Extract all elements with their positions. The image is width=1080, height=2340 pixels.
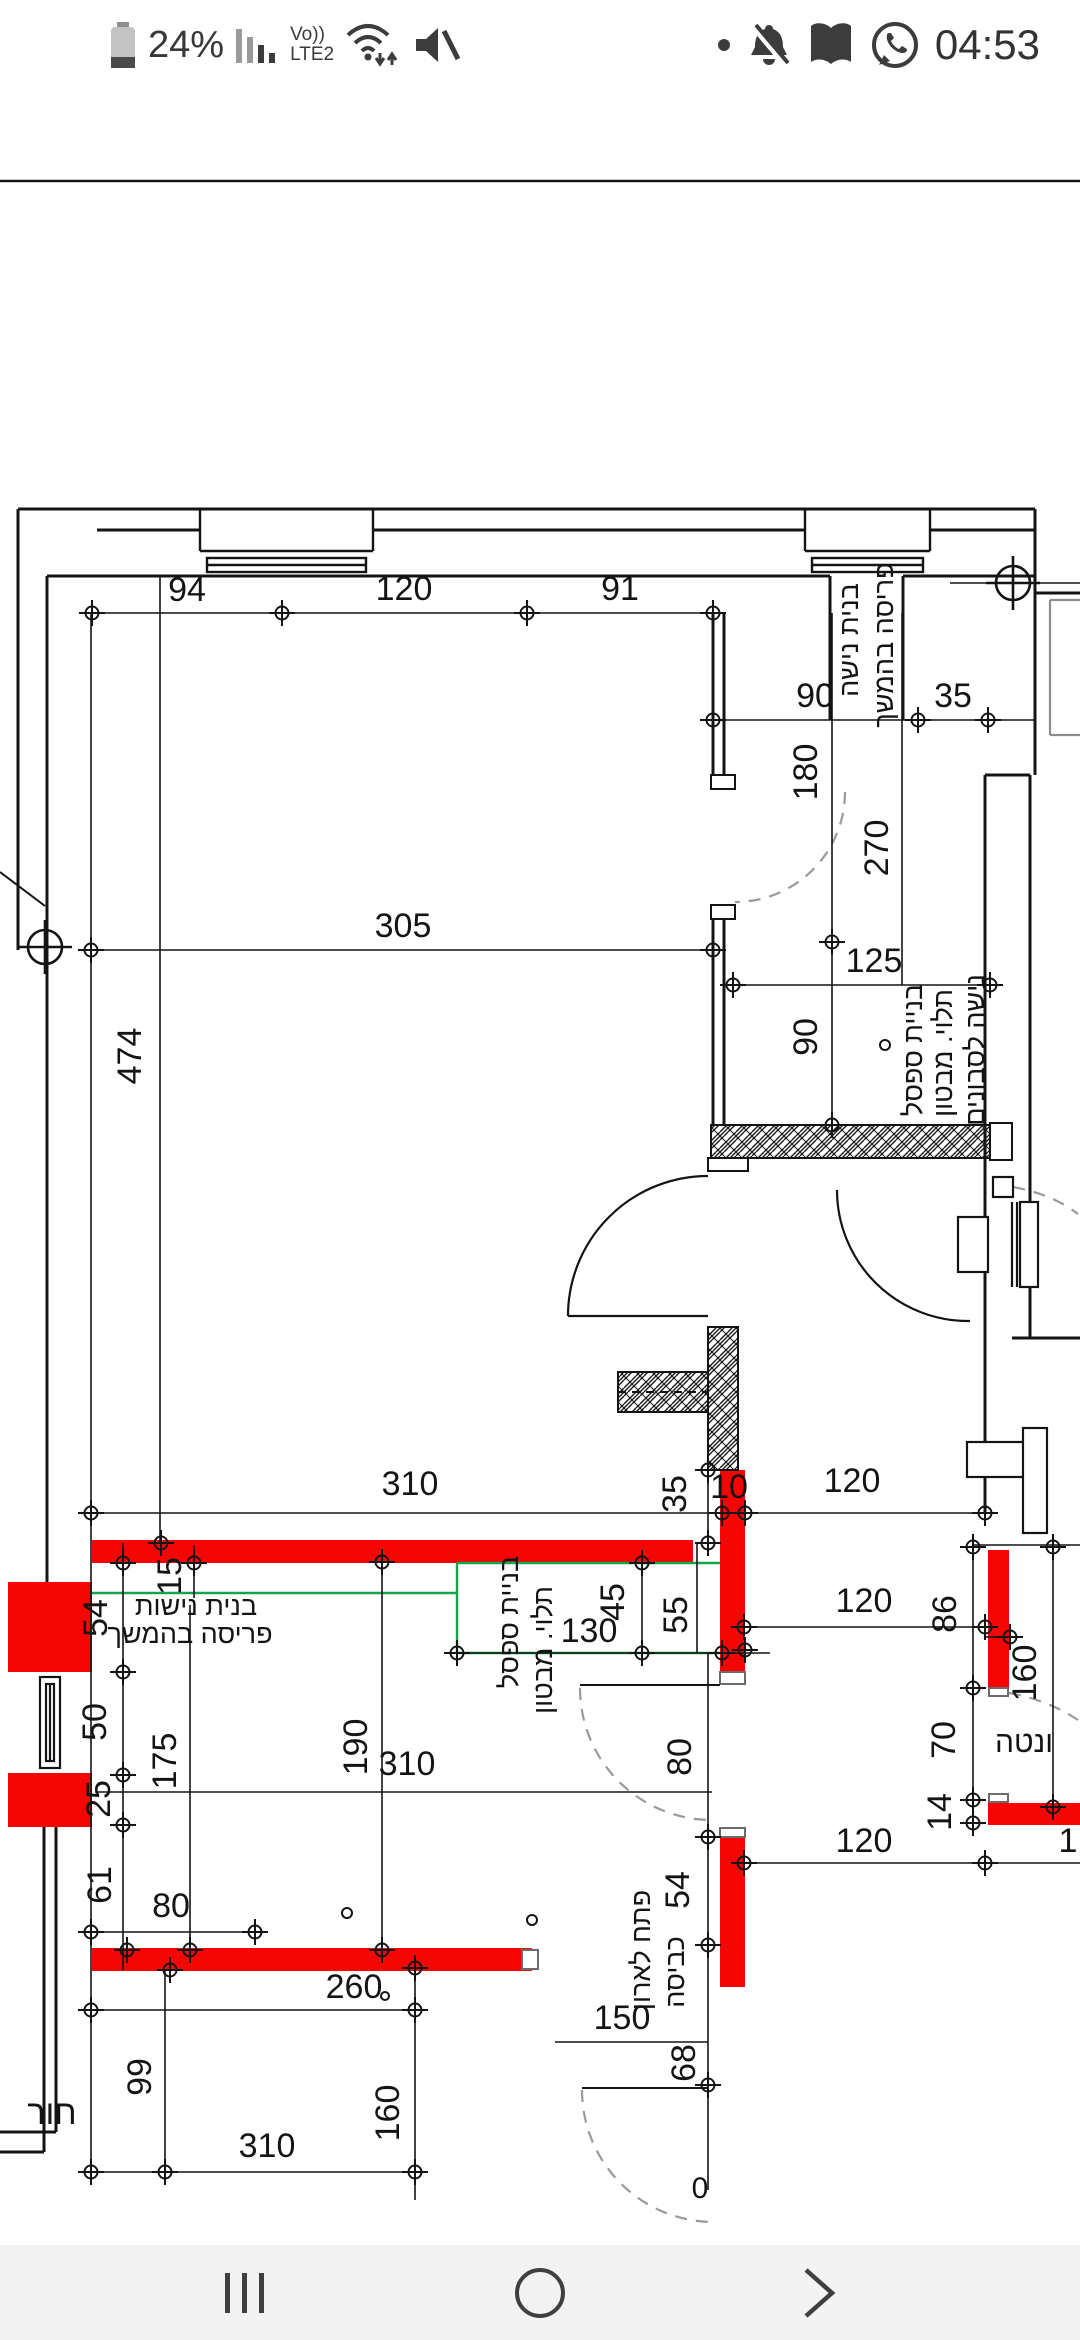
dim-90-b: 90 [787,1018,825,1056]
android-nav-bar [0,2245,1080,2340]
dim-partial-1: 1 [1059,1822,1078,1860]
label-bench-1: בניית ספסל [898,984,928,1116]
dim-310-b: 310 [379,1745,436,1783]
dim-190: 190 [337,1719,375,1776]
dim-160-a: 160 [1006,1645,1044,1702]
dim-70: 70 [925,1721,963,1759]
dim-180: 180 [787,744,825,801]
dim-91: 91 [601,570,639,608]
dim-310-a: 310 [382,1465,439,1503]
hatched-walls [618,775,1012,1470]
dim-260: 260 [326,1968,383,2006]
label-bench-b-1: בניית ספסל [494,1556,524,1688]
label-bench-2: תלוי. מבטון [928,989,958,1117]
dimension-markers [18,556,1066,2185]
dim-305: 305 [375,907,432,945]
dim-80-a: 80 [152,1887,190,1925]
dim-50: 50 [76,1703,114,1741]
label-niches-left-2: פריסה בהמשך [107,1619,272,1649]
dim-310-c: 310 [239,2127,296,2165]
survey-target-icon [986,556,1040,610]
dim-90-top: 90 [796,677,834,715]
label-niche-top-2: פריסה בהמשך [869,562,899,727]
dim-10: 10 [710,1468,748,1506]
dim-14: 14 [921,1793,959,1831]
dim-35-b: 35 [656,1475,694,1513]
label-laundry-2: כביסה [660,1936,690,2007]
dim-45: 45 [594,1583,632,1621]
dim-120-b: 120 [824,1462,881,1500]
label-niches-left-1: בנית נישות [135,1591,257,1621]
floorplan-drawing: 94 120 91 90 35 305 125 310 10 120 130 8… [0,0,1080,2340]
dim-35-top: 35 [934,677,972,715]
label-bench-b-2: תלוי. מבטון [528,1586,558,1714]
window-left-wall [40,1677,60,1768]
dim-80-b: 80 [661,1738,699,1776]
dim-175: 175 [146,1733,184,1790]
dim-86: 86 [926,1595,964,1633]
survey-target-icon [18,920,72,974]
dim-54-b: 54 [659,1871,697,1909]
floorplan-viewer[interactable]: 94 120 91 90 35 305 125 310 10 120 130 8… [0,0,1080,2340]
dim-61: 61 [81,1866,119,1904]
label-room-partial: חור [27,2094,76,2132]
dim-120-top: 120 [376,570,433,608]
neighbour-unit-lines [1050,600,1080,735]
dim-15: 15 [151,1557,189,1595]
dim-270: 270 [858,820,896,877]
window-top-left [200,509,373,572]
label-vent: ונטה [995,1726,1053,1759]
label-bench-3: נישה לסבונים [960,974,990,1126]
dim-474: 474 [111,1028,149,1085]
dim-99: 99 [121,2058,159,2096]
dim-25: 25 [80,1780,118,1818]
back-button[interactable] [806,2270,832,2316]
dim-partial-0: 0 [692,2172,709,2205]
dim-120-d: 120 [836,1822,893,1860]
window-top-right [805,509,930,572]
home-button[interactable] [517,2270,563,2316]
fixtures [958,1177,1047,1533]
label-niche-top-1: בנית נישה [834,583,864,697]
phone-screen: 24% Vo)) LTE2 [0,0,1080,2340]
dim-94: 94 [168,571,206,609]
label-laundry-1: פתח לארון [626,1890,656,2010]
dim-120-c: 120 [836,1582,893,1620]
recents-button[interactable] [225,2273,264,2313]
dim-55: 55 [657,1596,695,1634]
dim-160-b: 160 [369,2085,407,2142]
dim-125: 125 [846,942,903,980]
dim-68: 68 [665,2044,703,2082]
